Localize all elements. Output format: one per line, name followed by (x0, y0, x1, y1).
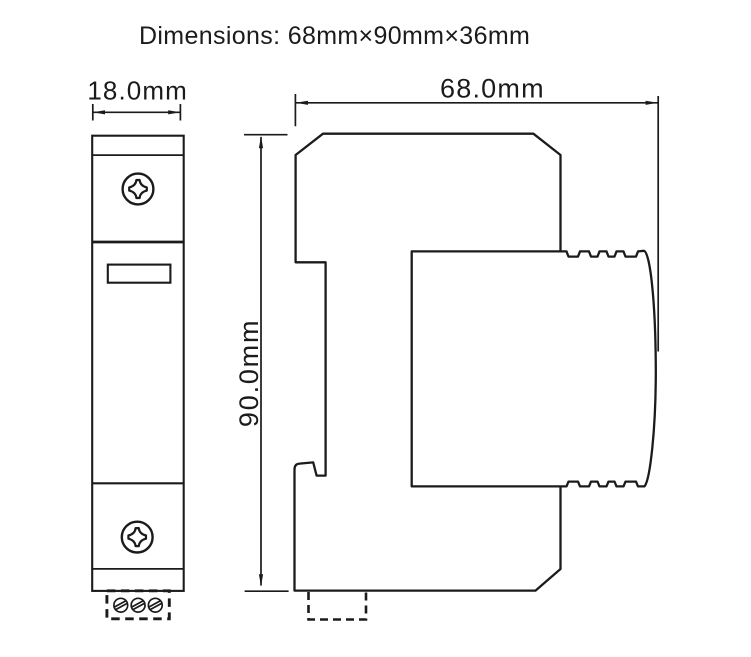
svg-text:18.0mm: 18.0mm (87, 76, 188, 106)
svg-text:68.0mm: 68.0mm (440, 74, 545, 104)
svg-text:90.0mm: 90.0mm (234, 319, 264, 427)
svg-text:Dimensions: 68mm×90mm×36mm: Dimensions: 68mm×90mm×36mm (139, 22, 530, 50)
